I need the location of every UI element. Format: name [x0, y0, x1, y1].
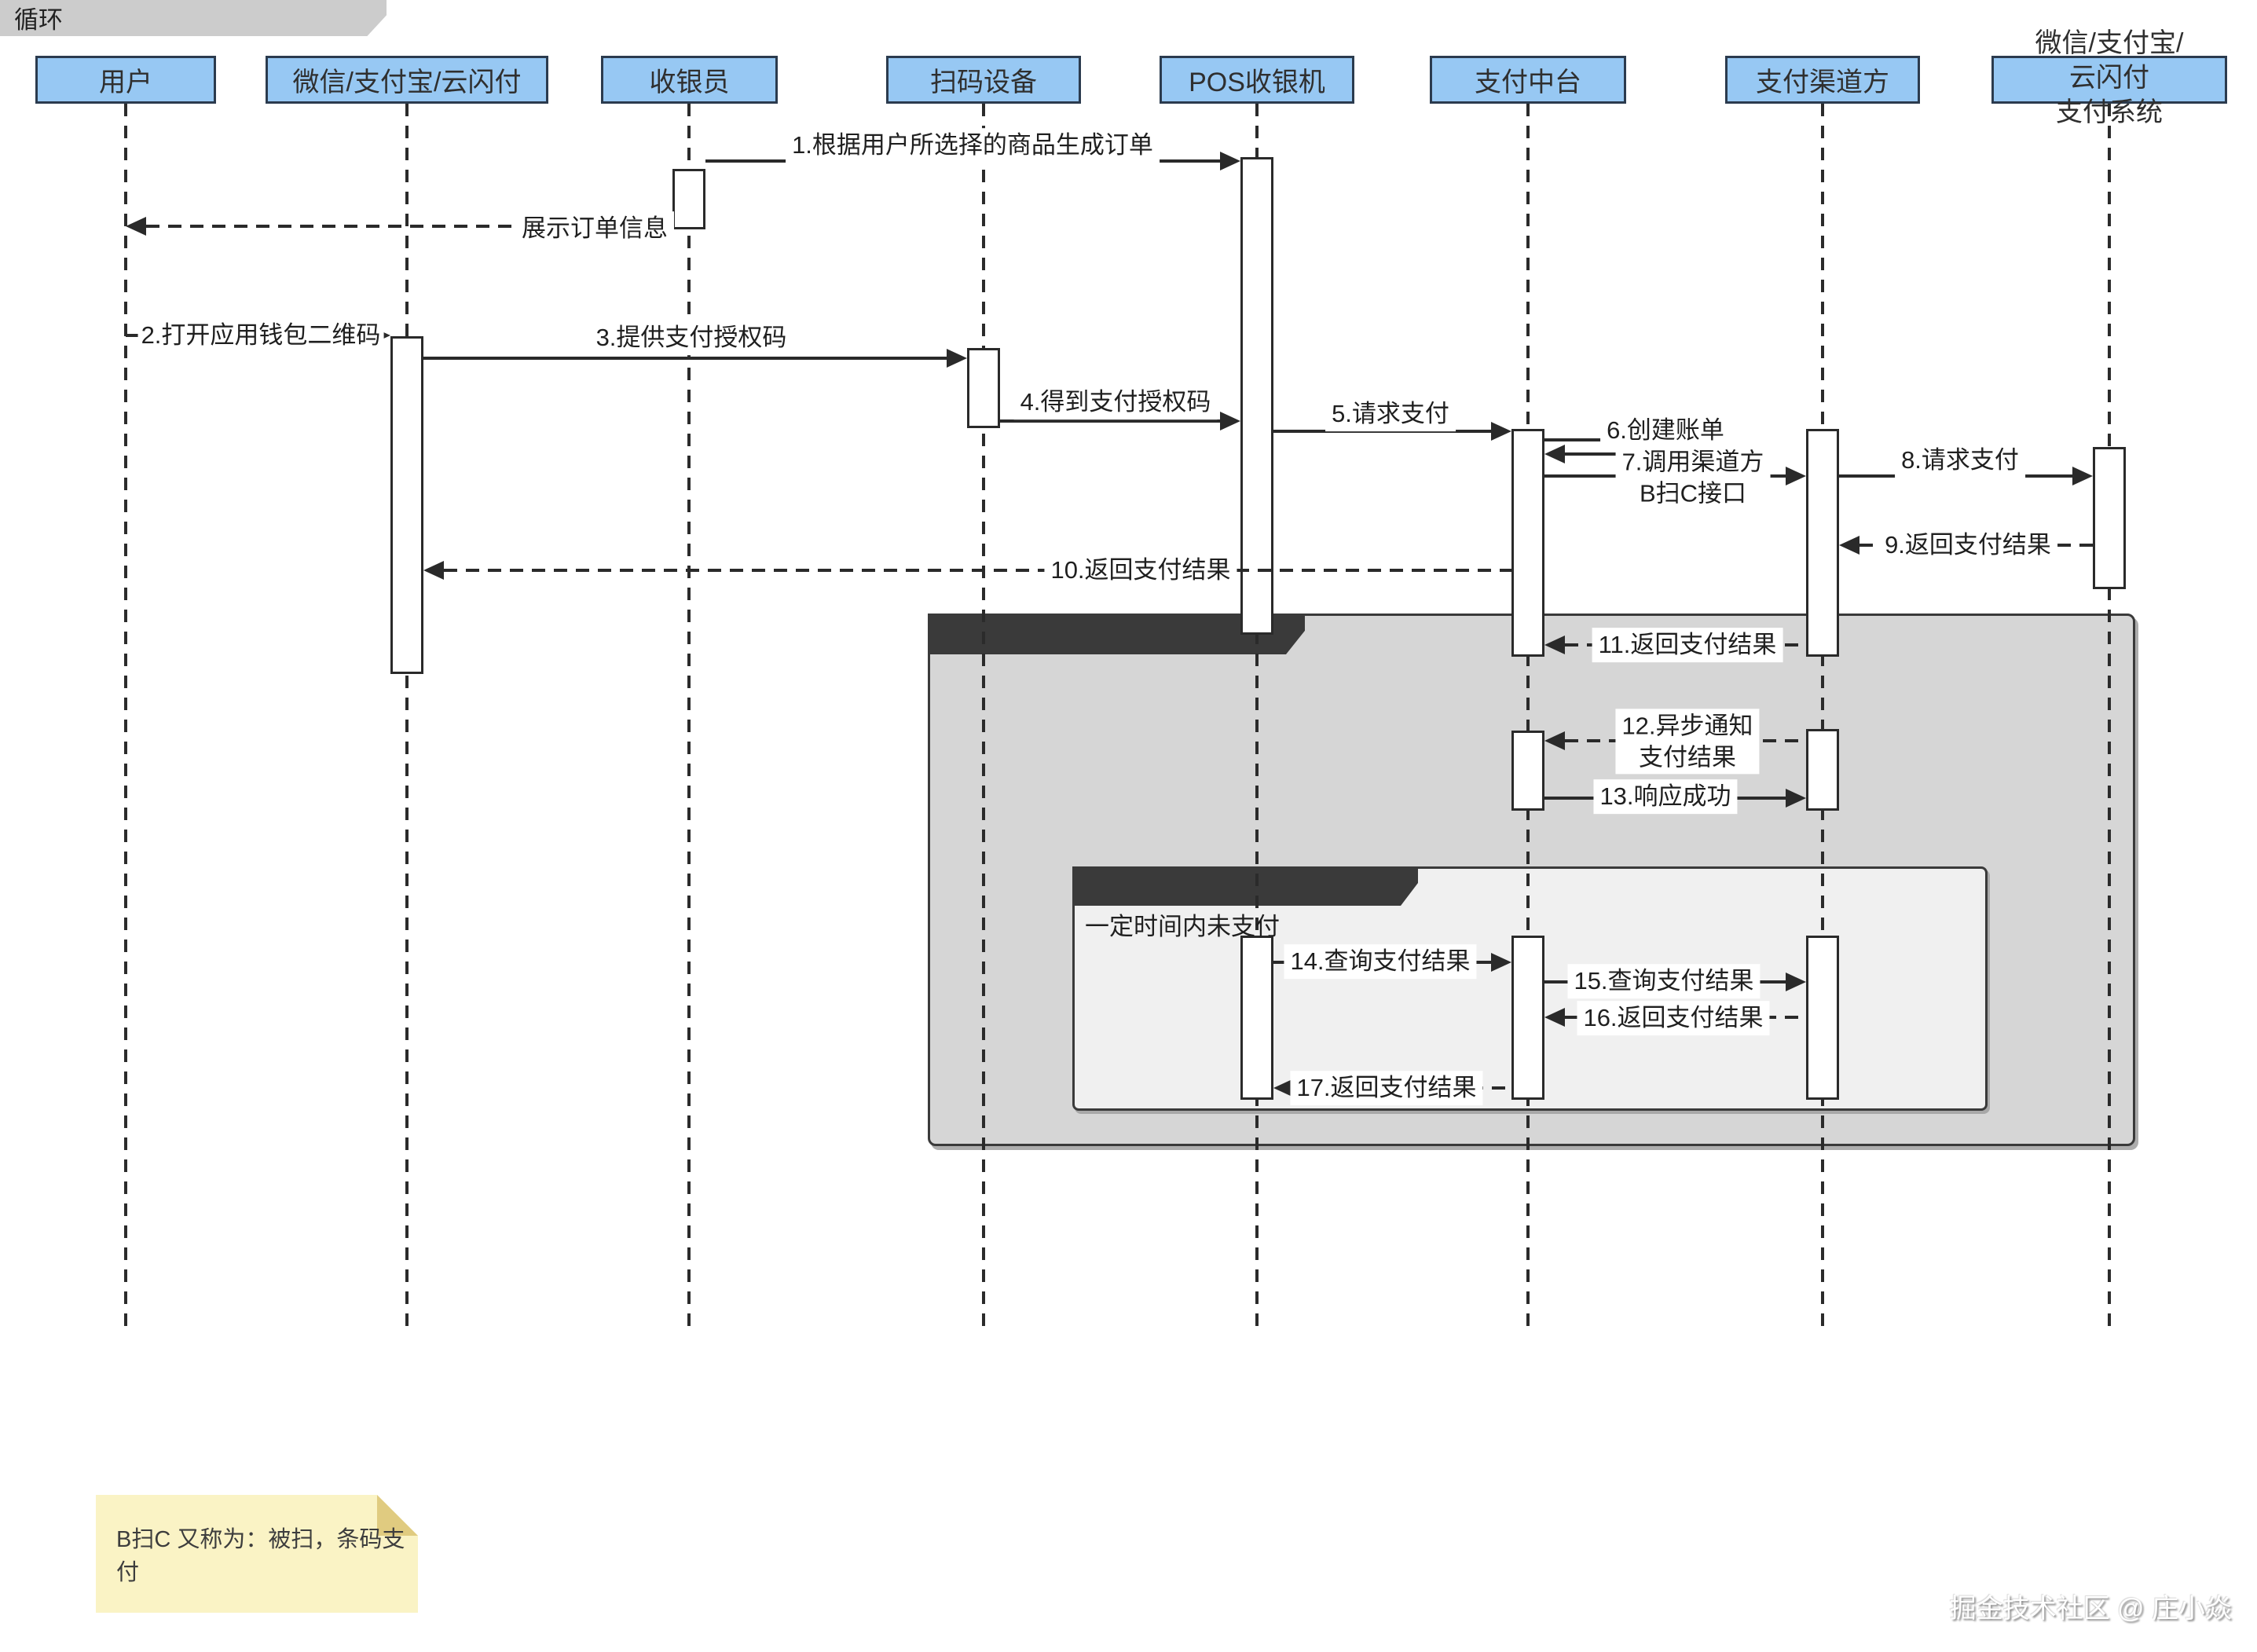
message-10-arrowhead [423, 561, 444, 580]
actor-wallet-app: 微信/支付宝/云闪付 [266, 56, 548, 104]
message-5-label: 5.请求支付 [1325, 397, 1456, 431]
message-7-arrowhead [1786, 467, 1806, 485]
activation-platform-2 [1511, 731, 1544, 811]
loop-guard-text: 一定时间内未支付 [1079, 910, 1286, 944]
message-15-label: 15.查询支付结果 [1567, 964, 1760, 998]
return-order-info-arrowhead [126, 217, 146, 236]
message-7-label: 7.调用渠道方 B扫C接口 [1616, 445, 1771, 510]
message-4-arrowhead [1220, 412, 1240, 430]
activation-pos-2 [1240, 936, 1273, 1100]
message-4-line [1000, 419, 1220, 423]
sequence-diagram: 并行处理 循环 1.根据用户所选择的商品生成订单 展示订单信息 2.打开应用钱包… [0, 0, 2257, 1652]
lifeline-user [124, 104, 127, 1329]
activation-platform-1 [1511, 429, 1544, 657]
activation-system [2093, 447, 2126, 589]
message-6-arrowhead [1544, 445, 1565, 463]
activation-channel-2 [1806, 729, 1839, 811]
message-4-label: 4.得到支付授权码 [1014, 385, 1218, 419]
lifeline-wallet-app [405, 104, 409, 1329]
message-10-line [444, 569, 1511, 572]
loop-frame-label-text-box: 循环 [0, 0, 355, 35]
actor-scanner: 扫码设备 [886, 56, 1081, 104]
lifeline-payment-platform [1526, 104, 1530, 1329]
message-11-label: 11.返回支付结果 [1592, 628, 1783, 662]
return-order-info-label: 展示订单信息 [515, 211, 674, 246]
message-1-label: 1.根据用户所选择的商品生成订单 [786, 128, 1160, 163]
message-8-arrowhead [2072, 467, 2093, 485]
note-text: B扫C 又称为：被扫，条码支付 [116, 1495, 418, 1613]
message-5-arrowhead [1491, 422, 1511, 441]
actor-cashier: 收银员 [601, 56, 778, 104]
message-3-arrowhead [947, 349, 967, 368]
activation-wallet-app [390, 336, 423, 674]
message-6-label: 6.创建账单 [1600, 413, 1731, 448]
activation-platform-3 [1511, 936, 1544, 1100]
message-17-label: 17.返回支付结果 [1290, 1071, 1482, 1105]
message-13-label: 13.响应成功 [1593, 779, 1737, 814]
message-2-label: 2.打开应用钱包二维码 [138, 318, 384, 353]
activation-scanner [967, 348, 1000, 428]
message-10-label: 10.返回支付结果 [1044, 553, 1237, 588]
lifeline-payment-system [2108, 104, 2111, 1329]
activation-cashier [672, 169, 705, 229]
actor-user: 用户 [35, 56, 216, 104]
message-12-label: 12.异步通知 支付结果 [1615, 709, 1759, 774]
message-15-arrowhead [1786, 973, 1806, 991]
lifeline-payment-channel [1821, 104, 1824, 1329]
activation-channel-1 [1806, 429, 1839, 657]
message-14-label: 14.查询支付结果 [1284, 944, 1476, 979]
activation-pos-1 [1240, 157, 1273, 635]
message-9-arrowhead [1839, 536, 1859, 555]
message-16-label: 16.返回支付结果 [1577, 1001, 1769, 1035]
activation-channel-3 [1806, 936, 1839, 1100]
message-16-arrowhead [1544, 1008, 1565, 1027]
message-1-arrowhead [1220, 152, 1240, 170]
loop-frame-label [1072, 866, 1418, 906]
message-8-label: 8.请求支付 [1895, 443, 2025, 478]
message-13-arrowhead [1786, 789, 1806, 808]
actor-pos: POS收银机 [1160, 56, 1354, 104]
message-3-line [423, 357, 947, 360]
watermark-text: 掘金技术社区 @ 庄小焱 [1950, 1587, 2232, 1625]
message-12-arrowhead [1544, 731, 1565, 750]
message-3-label: 3.提供支付授权码 [590, 321, 793, 355]
loop-frame-label-text: 循环 [14, 0, 63, 35]
lifeline-cashier [687, 104, 691, 1329]
message-11-arrowhead [1544, 636, 1565, 654]
note-b-scan-c: B扫C 又称为：被扫，条码支付 [96, 1495, 418, 1613]
lifeline-scanner [982, 104, 985, 1329]
message-9-label: 9.返回支付结果 [1878, 528, 2057, 562]
actor-payment-system-label: 微信/支付宝/ 云闪付 支付系统 [1984, 26, 2235, 130]
actor-payment-channel: 支付渠道方 [1725, 56, 1920, 104]
actor-payment-platform: 支付中台 [1430, 56, 1626, 104]
message-14-arrowhead [1491, 953, 1511, 972]
